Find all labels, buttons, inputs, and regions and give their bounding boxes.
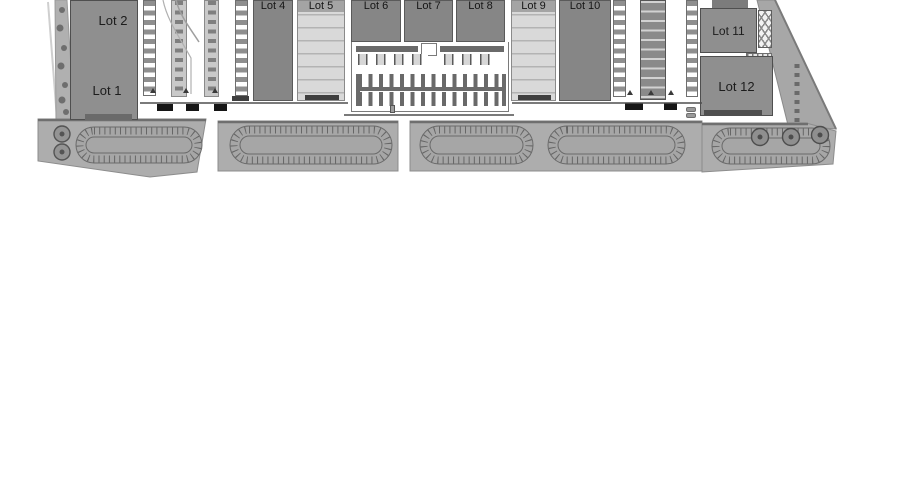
lot-6-building: Lot 6: [351, 0, 401, 42]
parking-band: [38, 119, 836, 177]
arrow-marker-icon: [668, 90, 674, 95]
parking-stall-column: [686, 0, 698, 97]
site-plan: Lot 2 Lot 1 Lot 4 Lot 5 Lot 6 Lot 7 Lot …: [0, 0, 900, 500]
parking-island: [76, 127, 202, 163]
court-stall-row: [358, 54, 428, 65]
court-stall-row: [444, 54, 490, 65]
court-canopy-bar: [356, 46, 418, 52]
parking-islands: [76, 126, 830, 164]
parking-stall-column: [235, 0, 248, 96]
arrow-marker-icon: [627, 90, 633, 95]
loading-dock-bar: [85, 114, 132, 120]
lot-4-building: Lot 4: [253, 0, 293, 101]
lot-4-label: Lot 4: [254, 0, 292, 12]
loading-dock-bar: [518, 95, 551, 100]
central-parking-court: [351, 42, 509, 112]
loading-dock-bar: [704, 110, 762, 115]
tree-icon: [812, 127, 829, 144]
trees: [54, 126, 829, 160]
lot-10-label: Lot 10: [560, 0, 610, 12]
crosswalk-bar: [186, 104, 199, 111]
arrow-marker-icon: [183, 88, 189, 93]
lot-7-building: Lot 7: [404, 0, 453, 42]
crosswalk-bar: [664, 103, 677, 110]
lot-1-label: Lot 1: [74, 85, 140, 97]
lot-11-stub: [712, 0, 748, 8]
parking-stall-column: [613, 0, 626, 97]
arrow-marker-icon: [648, 90, 654, 95]
court-canopy-bar: [440, 46, 504, 52]
shrub-icons: [57, 7, 70, 115]
tree-icon: [783, 129, 800, 146]
lot-9-yard: Lot 9: [511, 0, 556, 101]
tree-icon: [752, 129, 769, 146]
arrow-marker-icon: [212, 88, 218, 93]
parking-median-column: [204, 0, 219, 97]
lot-5-label: Lot 5: [298, 0, 344, 12]
parking-island: [230, 126, 392, 164]
lot-1-2-building: Lot 2 Lot 1: [70, 0, 138, 120]
parking-island: [420, 126, 533, 164]
lot-11-building: Lot 11: [700, 8, 757, 53]
parking-stall-column: [143, 0, 156, 96]
court-end-bar: [502, 74, 506, 106]
lot-10-building: Lot 10: [559, 0, 611, 101]
lot-9-label: Lot 9: [512, 0, 555, 12]
tree-icon: [54, 126, 70, 142]
sign-post: [390, 105, 395, 113]
loading-dock-bar: [232, 96, 249, 101]
parking-island: [548, 126, 685, 164]
parking-median-column: [171, 0, 187, 97]
lot-6-label: Lot 6: [352, 0, 400, 12]
ramp-crosshatch: [758, 10, 772, 48]
court-aisle-bar: [356, 87, 506, 91]
tree-icon: [54, 144, 70, 160]
crosswalk-bar: [625, 103, 643, 110]
lot-12-building: Lot 12: [700, 56, 773, 116]
lot-11-label: Lot 11: [712, 24, 744, 38]
court-end-bar: [356, 74, 360, 106]
curb-stop: [686, 113, 696, 118]
lot-8-label: Lot 8: [457, 0, 504, 12]
lot-2-label: Lot 2: [80, 15, 146, 27]
loading-dock-bar: [305, 95, 339, 100]
lot-7-label: Lot 7: [405, 0, 452, 12]
crosswalk-bar: [157, 104, 173, 111]
arrow-marker-icon: [150, 88, 156, 93]
court-parking-ticks: [358, 92, 504, 106]
lot-5-yard: Lot 5: [297, 0, 345, 101]
lot-12-label: Lot 12: [718, 79, 754, 94]
parking-island: [712, 128, 830, 164]
parking-double-strip: [640, 0, 666, 100]
court-parking-ticks: [358, 74, 504, 88]
curb-stop: [686, 107, 696, 112]
crosswalk-bar: [214, 104, 227, 111]
lot-8-building: Lot 8: [456, 0, 505, 42]
